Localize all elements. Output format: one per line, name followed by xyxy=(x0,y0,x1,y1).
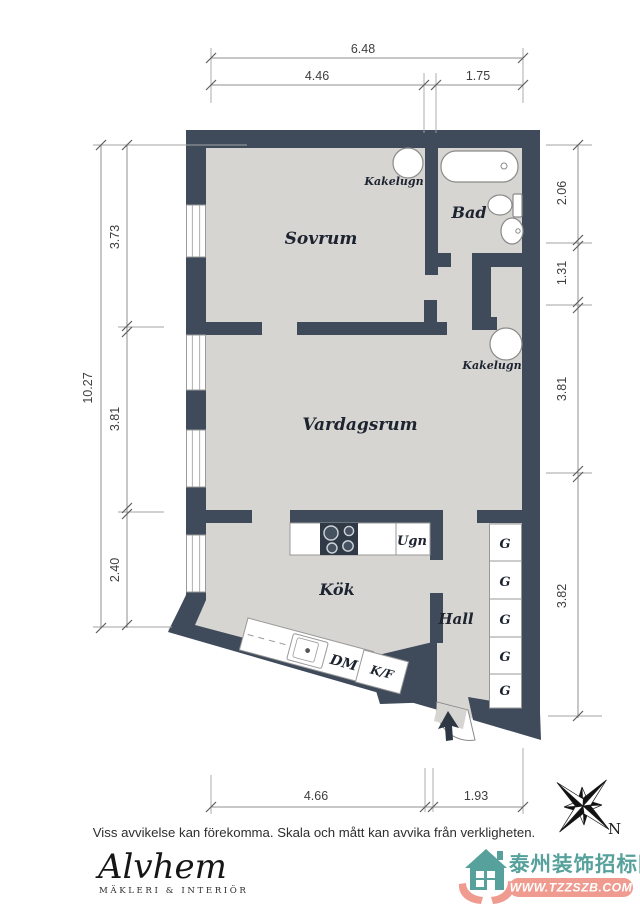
wall-niche-foot xyxy=(472,317,497,330)
wall-left-seg xyxy=(186,130,206,205)
oven-label: Ugn xyxy=(397,534,427,549)
dim-left-top: 3.73 xyxy=(108,225,122,249)
kakelugn-label: Kakelugn xyxy=(363,175,423,188)
toilet-tank xyxy=(513,194,522,217)
dim-bottom-right: 1.93 xyxy=(464,789,488,803)
dim-left-middle: 3.81 xyxy=(108,407,122,431)
dim-top-total: 6.48 xyxy=(351,42,375,56)
burner xyxy=(324,526,338,540)
room-label-sovrum: Sovrum xyxy=(285,229,358,249)
wall-sovrum-vardagsrum-right xyxy=(297,322,447,335)
kakelugn-vardagsrum xyxy=(490,328,522,360)
dim-left-total: 10.27 xyxy=(81,372,95,403)
wall-right xyxy=(522,130,540,730)
watermark-site-name: 泰州装饰招标网 xyxy=(508,852,640,876)
wardrobe-label: G xyxy=(499,650,510,665)
compass-north-label: N xyxy=(608,820,621,838)
brand-logo: Alvhem MÄKLERI & INTERIÖR xyxy=(95,847,248,896)
window xyxy=(187,335,206,390)
wall-stub xyxy=(430,510,443,523)
kakelugn-sovrum xyxy=(393,148,423,178)
wall-hall-top xyxy=(477,510,522,523)
burner xyxy=(344,526,353,535)
burner xyxy=(327,543,337,553)
wardrobe-label: G xyxy=(499,613,510,628)
watermark-site-url: WWW.TZZSZB.COM xyxy=(510,881,633,895)
dim-right-4: 3.82 xyxy=(555,584,569,608)
room-label-vardagsrum: Vardagsrum xyxy=(302,415,417,435)
dim-top-left: 4.46 xyxy=(305,69,329,83)
dim-top-right: 1.75 xyxy=(466,69,490,83)
kakelugn-label: Kakelugn xyxy=(461,359,521,372)
dim-right-1: 2.06 xyxy=(555,181,569,205)
dim-left-bottom: 2.40 xyxy=(108,558,122,582)
wall-vardagsrum-kok-right xyxy=(290,510,430,523)
wall-sovrum-vardagsrum-left xyxy=(206,322,262,335)
wardrobe-label: G xyxy=(499,684,510,699)
wall-stub xyxy=(424,300,437,322)
floor-plan-page: Ugn DM K/F G G G G G xyxy=(0,0,640,906)
burner xyxy=(343,541,353,551)
window xyxy=(187,205,206,257)
wall-left-seg xyxy=(186,487,206,535)
window xyxy=(187,535,206,592)
window xyxy=(187,430,206,487)
brand-tagline: MÄKLERI & INTERIÖR xyxy=(99,884,248,896)
dim-bottom-left: 4.66 xyxy=(304,789,328,803)
wardrobes: G G G G G xyxy=(490,524,522,708)
wardrobe-label: G xyxy=(499,575,510,590)
brand-name: Alvhem xyxy=(95,847,227,887)
dim-right-3: 3.81 xyxy=(555,377,569,401)
floor-plan-drawing: Ugn DM K/F G G G G G xyxy=(0,0,640,906)
disclaimer-text: Viss avvikelse kan förekomma. Skala och … xyxy=(93,825,535,840)
wall-vardagsrum-kok-left xyxy=(206,510,252,523)
wardrobe-label: G xyxy=(499,537,510,552)
wall-left-seg xyxy=(186,257,206,335)
kitchen-counter: Ugn xyxy=(290,523,430,555)
wall-kok-hall-upper xyxy=(430,523,443,560)
dim-right-2: 1.31 xyxy=(555,261,569,285)
room-label-kok: Kök xyxy=(318,580,354,599)
wall-sovrum-bad xyxy=(425,148,438,275)
wall-below-bad xyxy=(472,253,540,267)
room-label-bad: Bad xyxy=(450,203,486,222)
wall-left-seg xyxy=(186,390,206,430)
wall-stub xyxy=(438,253,451,267)
room-label-hall: Hall xyxy=(437,610,474,628)
toilet-bowl xyxy=(488,195,512,215)
